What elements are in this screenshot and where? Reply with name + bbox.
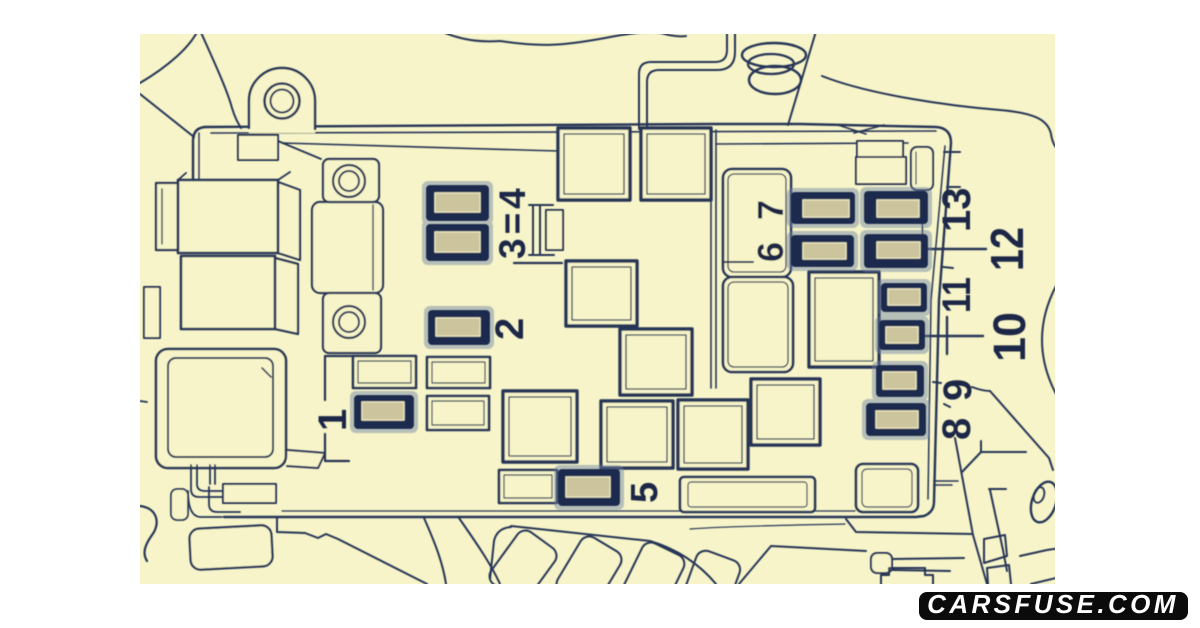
svg-text:12: 12 bbox=[981, 227, 1033, 271]
svg-text:CARSFUSE.COM: CARSFUSE.COM bbox=[927, 589, 1179, 619]
svg-text:10: 10 bbox=[984, 312, 1035, 362]
svg-text:8: 8 bbox=[935, 418, 979, 440]
svg-text:6 7: 6 7 bbox=[750, 194, 791, 262]
svg-text:5: 5 bbox=[624, 482, 666, 503]
svg-text:2: 2 bbox=[488, 318, 532, 340]
svg-text:3=4: 3=4 bbox=[492, 184, 533, 259]
svg-text:13: 13 bbox=[935, 188, 979, 233]
svg-text:1: 1 bbox=[311, 409, 355, 431]
svg-text:11: 11 bbox=[935, 277, 979, 313]
svg-text:9: 9 bbox=[936, 379, 980, 401]
